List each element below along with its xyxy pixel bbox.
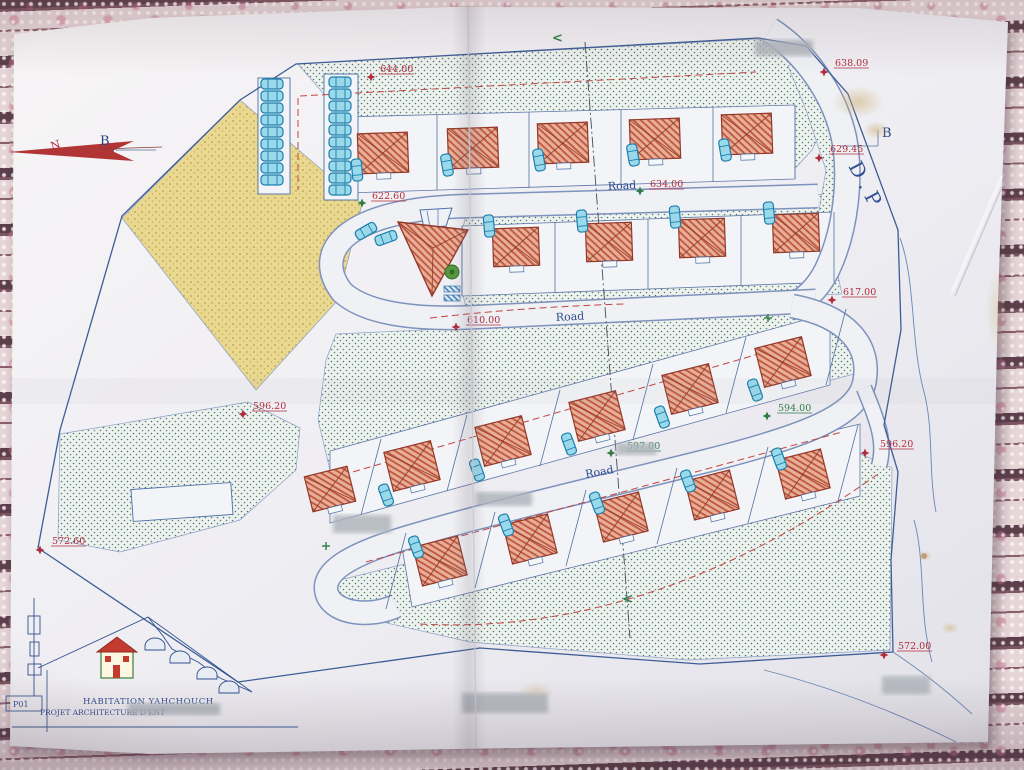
- blurred-redaction: [128, 703, 220, 715]
- car-body: [329, 101, 351, 111]
- car: [261, 115, 283, 125]
- car-body: [669, 206, 681, 229]
- car-body: [763, 202, 775, 225]
- car-body: [261, 127, 283, 137]
- house-porch: [603, 261, 617, 267]
- car: [329, 161, 351, 171]
- car-body: [261, 139, 283, 149]
- stain: [832, 86, 884, 118]
- car: [329, 173, 351, 183]
- car: [261, 79, 283, 89]
- car: [329, 125, 351, 135]
- section-arrow: <: [552, 31, 563, 46]
- stain: [863, 121, 889, 139]
- photo-of-site-plan: 644.00638.09629.45634.00622.60617.00610.…: [0, 0, 1024, 770]
- car: [329, 185, 351, 195]
- section-arrow: <: [622, 592, 633, 607]
- logo-hut: [219, 681, 239, 693]
- car: [261, 163, 283, 173]
- car: [261, 151, 283, 161]
- site-plan-drawing: 644.00638.09629.45634.00622.60617.00610.…: [0, 0, 1024, 770]
- car-body: [329, 113, 351, 123]
- car-body: [329, 77, 351, 87]
- elevation-label: 572.00: [898, 641, 931, 652]
- logo-hut: [170, 651, 190, 663]
- elevation-label: 572.60: [52, 536, 85, 547]
- car-body: [329, 173, 351, 183]
- car-body: [261, 91, 283, 101]
- house: [492, 227, 540, 273]
- elevation-label: 629.45: [830, 144, 863, 155]
- car: [329, 113, 351, 123]
- car: [329, 101, 351, 111]
- blurred-redaction: [755, 40, 813, 56]
- house: [357, 132, 409, 180]
- logo-house-door: [113, 665, 120, 678]
- car: [329, 89, 351, 99]
- logo-house-window: [105, 656, 111, 662]
- elevation-label: 634.00: [650, 179, 683, 190]
- stain: [941, 622, 959, 634]
- house-porch: [696, 257, 710, 263]
- car-body: [329, 125, 351, 135]
- house-porch: [510, 266, 524, 272]
- road-label: Road: [607, 179, 636, 193]
- house-porch: [377, 173, 391, 179]
- car-body: [329, 137, 351, 147]
- car: [261, 175, 283, 185]
- blurred-redaction: [882, 676, 930, 694]
- car-body: [261, 175, 283, 185]
- car-body: [261, 103, 283, 113]
- house: [678, 218, 726, 264]
- house: [772, 213, 820, 259]
- car: [261, 103, 283, 113]
- logo-hut: [145, 638, 165, 650]
- car: [669, 206, 681, 229]
- car-body: [261, 151, 283, 161]
- car: [261, 139, 283, 149]
- car-body: [351, 159, 363, 182]
- house-porch: [649, 159, 663, 165]
- car: [329, 77, 351, 87]
- house-porch: [790, 252, 804, 258]
- elevation-label: 622.60: [372, 191, 405, 202]
- parking-lot: [131, 483, 233, 522]
- house-porch: [741, 154, 755, 160]
- stain: [986, 268, 1006, 352]
- blurred-redaction: [333, 515, 391, 533]
- car-body: [329, 185, 351, 195]
- sheet-number: P01: [13, 700, 29, 709]
- logo-house-window: [123, 656, 129, 662]
- road-label: Road: [555, 310, 584, 324]
- logo-hut: [197, 667, 217, 679]
- car: [329, 137, 351, 147]
- elevation-label: 638.09: [835, 58, 868, 69]
- car: [763, 202, 775, 225]
- horizontal-crease: [10, 378, 1008, 404]
- car: [351, 159, 363, 182]
- stain-spot: [921, 553, 927, 559]
- blurred-redaction: [616, 443, 656, 455]
- car-body: [329, 161, 351, 171]
- elevation-label: 617.00: [843, 287, 876, 298]
- car-body: [261, 115, 283, 125]
- car-body: [261, 79, 283, 89]
- car: [261, 127, 283, 137]
- car: [329, 149, 351, 159]
- car-body: [329, 89, 351, 99]
- car: [576, 210, 588, 233]
- elevation-label: 594.00: [778, 403, 811, 414]
- elevation-label: 596.20: [880, 439, 913, 450]
- car-body: [576, 210, 588, 233]
- car-body: [261, 163, 283, 173]
- car-body: [329, 149, 351, 159]
- stain: [518, 682, 554, 698]
- section-b-left-label: B: [100, 134, 110, 149]
- house-porch: [557, 163, 571, 169]
- house: [585, 222, 633, 268]
- car: [261, 91, 283, 101]
- elevation-label: 644.00: [380, 64, 413, 75]
